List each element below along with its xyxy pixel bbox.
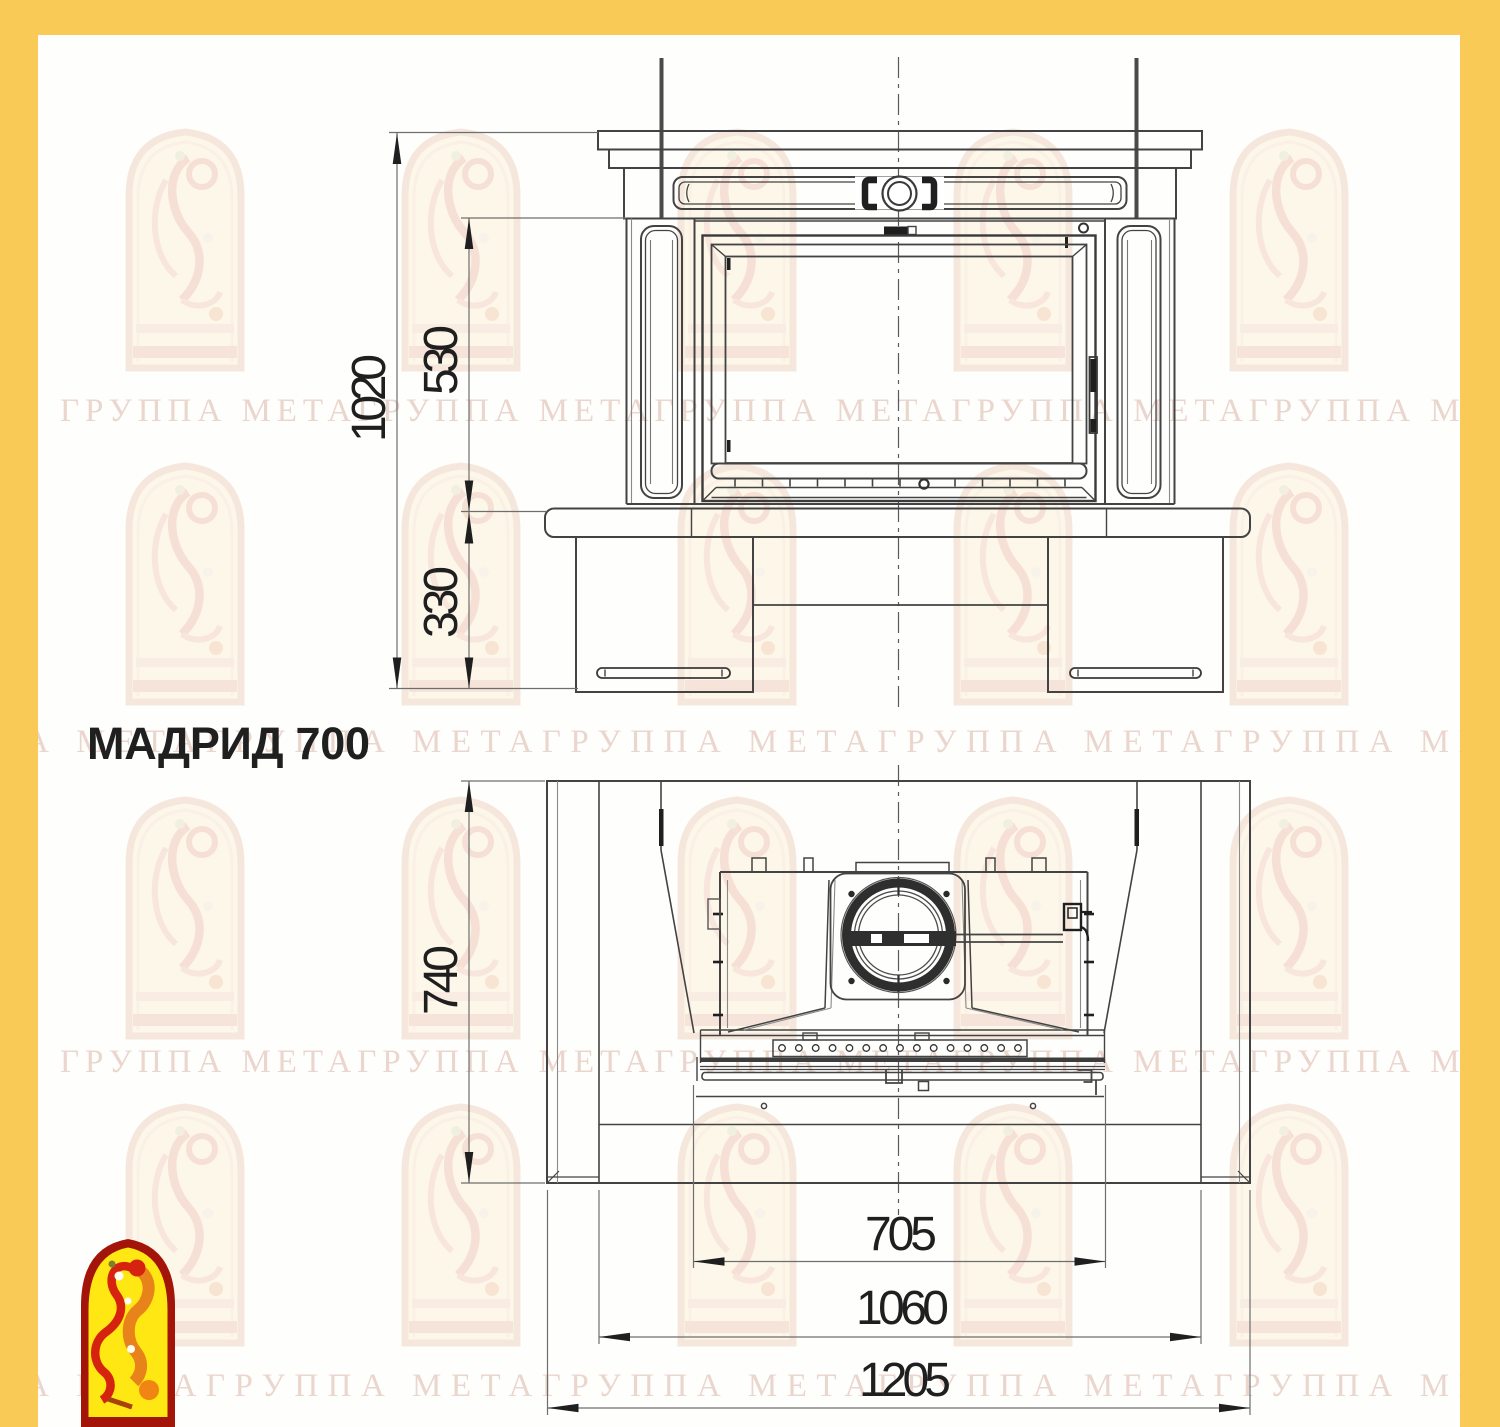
svg-text:705: 705	[865, 1208, 937, 1261]
svg-text:1020: 1020	[343, 354, 396, 442]
svg-text:1205: 1205	[859, 1354, 951, 1407]
svg-text:330: 330	[415, 566, 468, 638]
svg-text:530: 530	[415, 325, 468, 395]
svg-text:МАДРИД 700: МАДРИД 700	[87, 718, 370, 769]
svg-text:ГРУППА МЕТАГРУППА МЕТАГРУППА М: ГРУППА МЕТАГРУППА МЕТАГРУППА МЕТАГРУППА …	[60, 393, 1500, 429]
svg-text:1060: 1060	[856, 1282, 949, 1335]
svg-text:740: 740	[415, 945, 468, 1015]
